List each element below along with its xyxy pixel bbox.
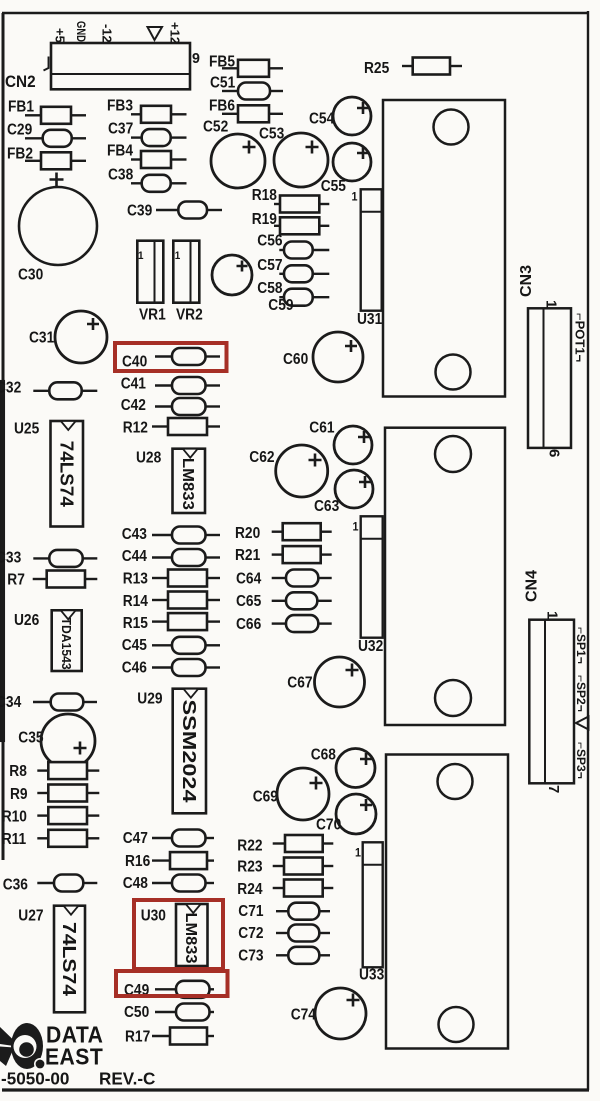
svg-text:C45: C45: [122, 636, 147, 654]
svg-text:R15: R15: [123, 614, 148, 632]
svg-text:SSM2024: SSM2024: [179, 700, 199, 803]
svg-text:C66: C66: [236, 615, 261, 633]
svg-text:C50: C50: [124, 1003, 149, 1021]
svg-text:R11: R11: [2, 830, 26, 848]
svg-text:C51: C51: [210, 74, 235, 92]
svg-text:CN3: CN3: [518, 265, 535, 297]
svg-text:C43: C43: [122, 525, 147, 543]
svg-text:C44: C44: [122, 547, 148, 565]
svg-text:C57: C57: [257, 256, 282, 274]
svg-text:+12: +12: [168, 22, 183, 44]
svg-text:U28: U28: [136, 449, 161, 467]
svg-text:C37: C37: [108, 120, 133, 138]
svg-text:GND: GND: [74, 21, 88, 42]
svg-text:C61: C61: [309, 419, 334, 437]
svg-text:TDA1543: TDA1543: [59, 618, 73, 670]
svg-text:R9: R9: [10, 785, 28, 803]
svg-text:⌐POT1¬: ⌐POT1¬: [573, 313, 588, 363]
svg-text:R23: R23: [237, 858, 262, 876]
svg-text:C72: C72: [238, 924, 263, 942]
svg-text:EAST: EAST: [45, 1044, 103, 1070]
svg-text:1: 1: [175, 250, 181, 262]
svg-text:C65: C65: [236, 592, 261, 610]
svg-text:R13: R13: [123, 570, 148, 588]
svg-text:R10: R10: [2, 808, 27, 826]
svg-text:R18: R18: [252, 186, 277, 204]
svg-text:U32: U32: [358, 637, 383, 655]
svg-text:C59: C59: [268, 296, 293, 314]
svg-text:C48: C48: [123, 874, 148, 892]
svg-text:C71: C71: [238, 902, 263, 920]
svg-text:C53: C53: [259, 125, 284, 143]
svg-text:C41: C41: [121, 375, 146, 393]
svg-text:C74: C74: [291, 1006, 317, 1024]
svg-text:R19: R19: [252, 210, 277, 228]
svg-text:U33: U33: [359, 966, 384, 984]
svg-text:C64: C64: [236, 570, 262, 588]
svg-text:R25: R25: [364, 59, 389, 77]
svg-text:C67: C67: [287, 674, 312, 692]
svg-text:1: 1: [543, 300, 560, 308]
svg-text:C56: C56: [257, 232, 282, 250]
svg-text:VR1: VR1: [139, 306, 166, 324]
svg-text:R22: R22: [237, 837, 262, 855]
svg-text:C32: C32: [0, 379, 21, 397]
svg-text:CN2: CN2: [5, 72, 36, 91]
svg-text:C54: C54: [309, 110, 335, 128]
svg-text:R7: R7: [7, 571, 25, 589]
svg-text:C46: C46: [122, 659, 147, 677]
svg-text:-12: -12: [100, 24, 115, 43]
svg-text:C52: C52: [203, 118, 228, 136]
svg-text:C62: C62: [249, 448, 274, 466]
svg-text:R21: R21: [235, 546, 260, 564]
svg-text:C58: C58: [257, 279, 282, 297]
svg-text:U26: U26: [14, 611, 39, 629]
svg-text:C47: C47: [123, 829, 148, 847]
svg-text:-5050-00: -5050-00: [1, 1068, 70, 1089]
svg-text:1: 1: [355, 847, 362, 860]
svg-text:R17: R17: [125, 1028, 150, 1046]
svg-text:C33: C33: [0, 549, 21, 567]
svg-text:C73: C73: [238, 947, 263, 965]
svg-text:U31: U31: [357, 310, 382, 328]
svg-text:R16: R16: [125, 852, 150, 870]
svg-text:⌐SP3¬: ⌐SP3¬: [574, 742, 588, 779]
svg-text:1: 1: [353, 521, 360, 534]
svg-text:C30: C30: [18, 266, 43, 284]
svg-text:+5: +5: [53, 28, 68, 43]
svg-text:C68: C68: [311, 746, 336, 764]
svg-text:LM833: LM833: [179, 458, 196, 510]
svg-text:LM833: LM833: [182, 913, 199, 964]
svg-text:U30: U30: [141, 907, 166, 925]
svg-text:VR2: VR2: [176, 306, 203, 324]
svg-text:74LS74: 74LS74: [59, 922, 79, 996]
svg-text:FB3: FB3: [107, 97, 133, 115]
svg-text:C55: C55: [321, 177, 346, 195]
svg-text:FB6: FB6: [209, 97, 235, 115]
svg-text:FB1: FB1: [8, 98, 34, 116]
svg-text:9: 9: [192, 50, 200, 66]
svg-text:R8: R8: [9, 762, 27, 780]
svg-text:U25: U25: [14, 420, 39, 438]
svg-text:C29: C29: [7, 121, 32, 139]
svg-text:C31: C31: [29, 329, 54, 347]
svg-text:C70: C70: [316, 816, 341, 834]
svg-text:C34: C34: [0, 693, 22, 711]
svg-text:R14: R14: [123, 592, 149, 610]
svg-text:U29: U29: [137, 690, 162, 708]
svg-text:C36: C36: [3, 876, 28, 894]
svg-text:CN4: CN4: [524, 570, 541, 602]
svg-text:R24: R24: [237, 880, 263, 898]
svg-text:C60: C60: [283, 350, 308, 368]
svg-text:1: 1: [352, 191, 359, 204]
svg-text:C69: C69: [253, 788, 278, 806]
svg-text:C39: C39: [127, 202, 152, 220]
svg-text:C38: C38: [108, 166, 133, 184]
svg-text:R12: R12: [123, 419, 148, 437]
svg-text:REV.-C: REV.-C: [99, 1068, 156, 1089]
svg-text:C63: C63: [314, 497, 339, 515]
svg-text:U27: U27: [18, 907, 43, 925]
svg-text:R20: R20: [235, 524, 260, 542]
svg-text:7: 7: [545, 785, 562, 793]
svg-text:6: 6: [546, 449, 563, 457]
svg-text:⌐SP1¬: ⌐SP1¬: [574, 627, 588, 664]
svg-text:⌐SP2¬: ⌐SP2¬: [574, 675, 588, 712]
svg-text:74LS74: 74LS74: [56, 441, 76, 507]
svg-text:FB4: FB4: [107, 142, 134, 160]
svg-text:C35: C35: [18, 729, 43, 747]
svg-text:C40: C40: [122, 353, 147, 371]
svg-text:1: 1: [138, 250, 144, 262]
svg-text:C42: C42: [121, 396, 146, 414]
svg-text:1: 1: [544, 611, 561, 619]
